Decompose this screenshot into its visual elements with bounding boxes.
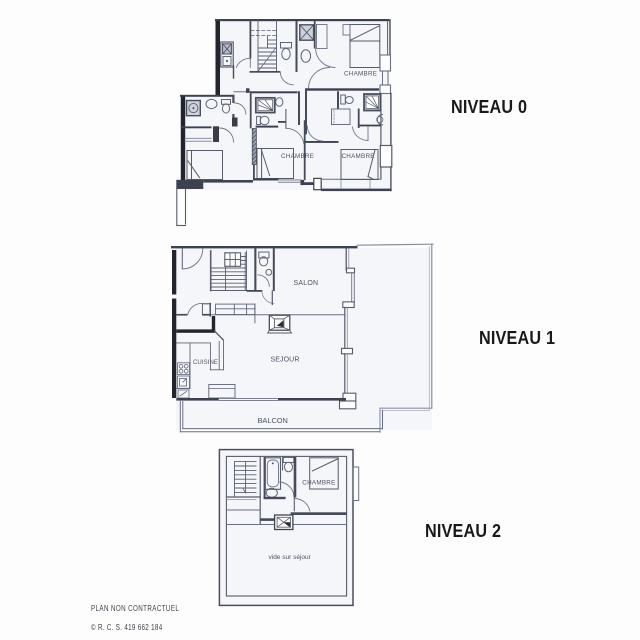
svg-text:SEJOUR: SEJOUR [271, 357, 300, 364]
svg-text:CHAMBRE: CHAMBRE [281, 153, 314, 160]
svg-text:CHAMBRE: CHAMBRE [342, 153, 375, 160]
svg-text:vide sur séjour: vide sur séjour [269, 554, 312, 561]
svg-text:CUISINE: CUISINE [193, 360, 218, 366]
svg-text:CHAMBRE: CHAMBRE [344, 70, 377, 77]
svg-text:BALCON: BALCON [258, 416, 288, 425]
svg-text:SALON: SALON [294, 280, 319, 287]
svg-text:CHAMBRE: CHAMBRE [302, 480, 335, 487]
